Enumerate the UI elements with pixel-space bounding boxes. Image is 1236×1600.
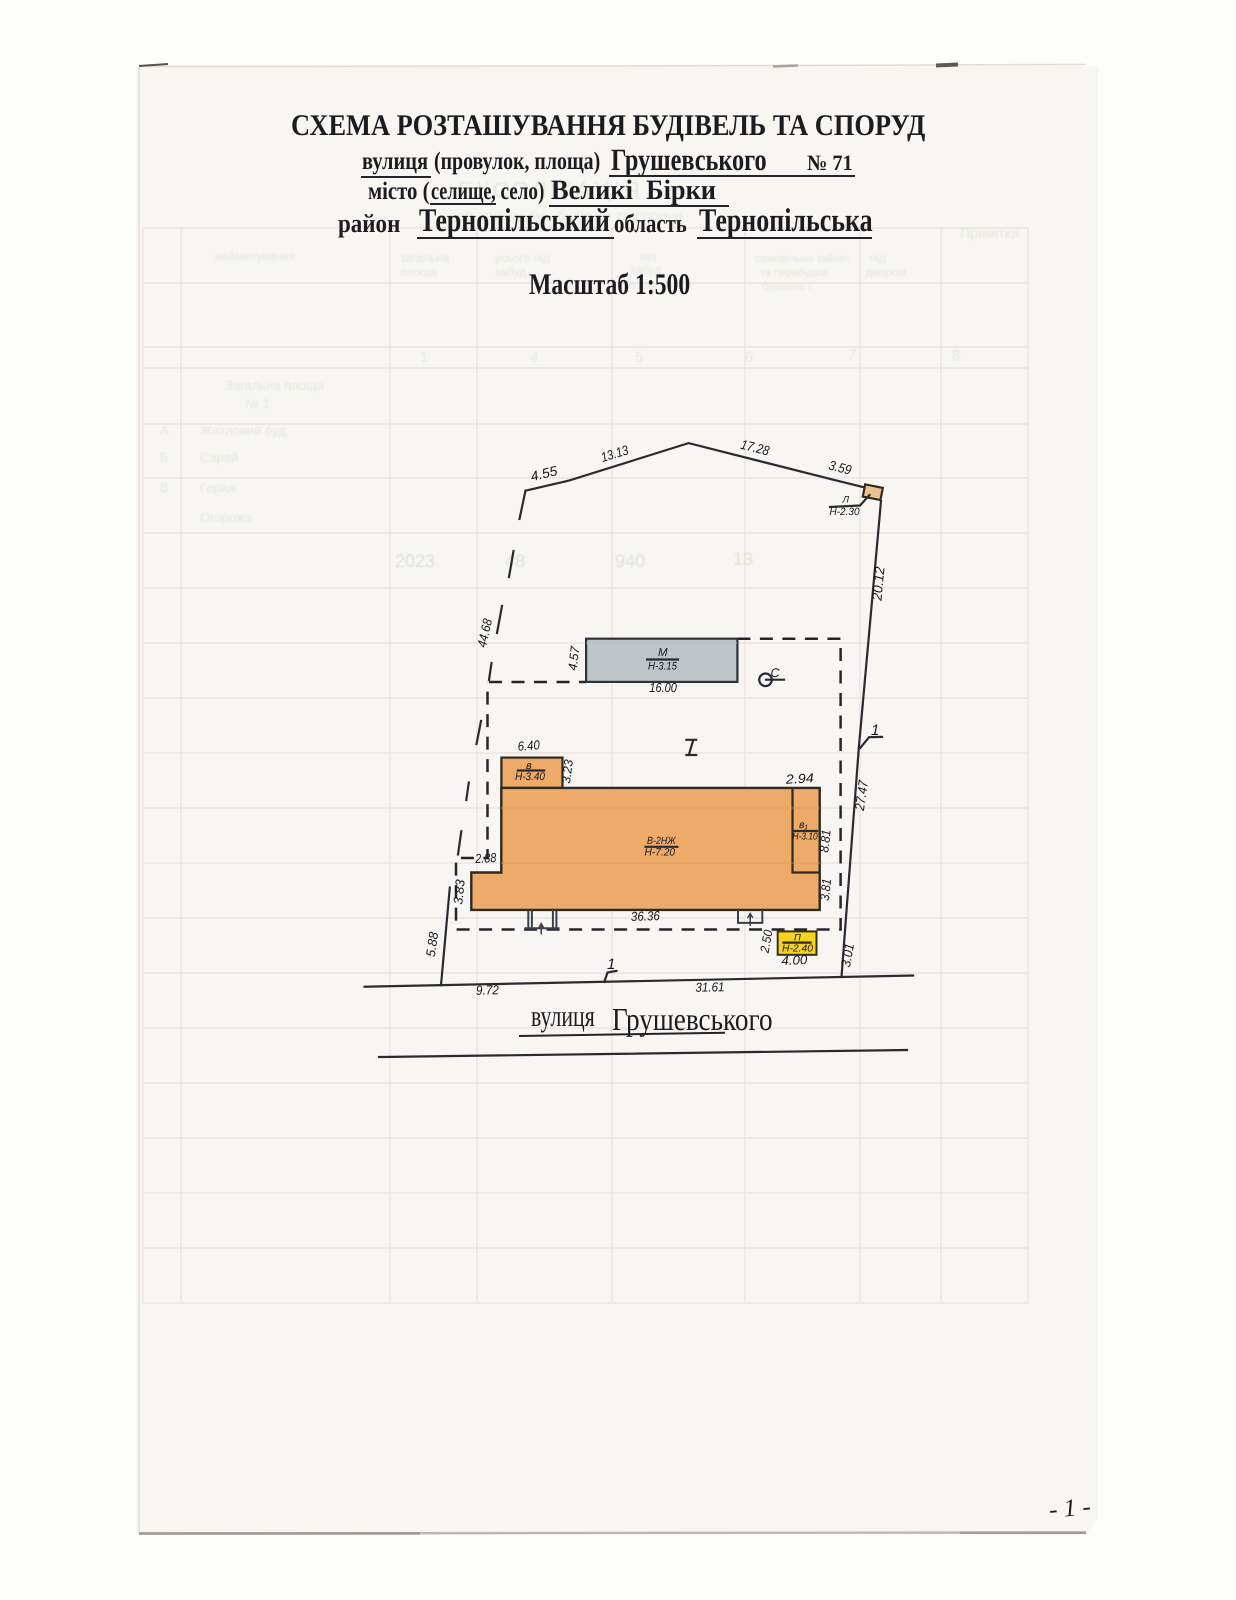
svg-text:В: В: [160, 480, 169, 495]
svg-text:7: 7: [848, 347, 856, 364]
svg-text:48: 48: [505, 551, 525, 571]
svg-text:2023: 2023: [395, 551, 435, 571]
svg-text:будівель і: будівель і: [762, 281, 811, 293]
svg-text:самовільно зайнят.: самовільно зайнят.: [755, 253, 852, 265]
svg-text:4: 4: [530, 349, 538, 366]
svg-text:2.88: 2.88: [474, 850, 497, 866]
svg-text:Загальна площа: Загальна площа: [225, 378, 325, 393]
svg-text:4.00: 4.00: [781, 952, 808, 968]
svg-text:Н-3.10: Н-3.10: [793, 832, 819, 843]
svg-text:С: С: [771, 666, 781, 680]
svg-text:13: 13: [733, 549, 753, 569]
svg-text:3.83: 3.83: [450, 878, 468, 905]
svg-text:3.59: 3.59: [827, 458, 853, 478]
svg-text:5: 5: [635, 349, 643, 366]
svg-text:940: 940: [615, 551, 645, 571]
svg-text:6.40: 6.40: [517, 737, 541, 754]
svg-text:двором: двором: [865, 265, 907, 279]
svg-text:1: 1: [607, 956, 615, 973]
svg-text:8.81: 8.81: [816, 829, 833, 853]
svg-text:31.61: 31.61: [695, 979, 724, 995]
svg-text:В-2НЖ: В-2НЖ: [647, 835, 677, 847]
svg-text:Примітка: Примітка: [960, 225, 1019, 241]
svg-text:2.50: 2.50: [758, 929, 776, 955]
svg-text:36.36: 36.36: [631, 908, 661, 924]
svg-text:27.47: 27.47: [852, 779, 871, 812]
svg-text:5.88: 5.88: [423, 930, 441, 958]
svg-text:6: 6: [745, 349, 753, 366]
svg-text:Н-2.30: Н-2.30: [830, 506, 860, 518]
svg-text:9.72: 9.72: [476, 982, 500, 997]
svg-text:від: від: [640, 249, 656, 263]
svg-text:№ 1: № 1: [245, 396, 270, 411]
svg-text:Б: Б: [160, 450, 169, 465]
svg-text:3.81: 3.81: [817, 878, 834, 901]
svg-text:найменування: найменування: [215, 249, 295, 263]
svg-text:загальна: загальна: [400, 251, 450, 265]
svg-text:Н-3.15: Н-3.15: [648, 661, 678, 673]
svg-text:площа: площа: [400, 265, 437, 279]
svg-text:13.13: 13.13: [599, 442, 631, 465]
svg-text:Л: Л: [842, 495, 850, 506]
svg-text:8: 8: [952, 347, 960, 364]
svg-text:в₁: в₁: [799, 819, 808, 831]
svg-text:Огорожа: Огорожа: [200, 510, 253, 525]
svg-text:1: 1: [871, 722, 879, 739]
svg-text:під: під: [870, 251, 886, 265]
svg-text:усього під: усього під: [495, 251, 550, 265]
svg-text:Н-3.40: Н-3.40: [515, 771, 546, 783]
svg-text:та перебудов: та перебудов: [760, 267, 828, 279]
svg-text:20.12: 20.12: [868, 566, 887, 602]
svg-text:А: А: [160, 423, 169, 438]
svg-text:Н-7.20: Н-7.20: [645, 847, 676, 859]
svg-text:3.23: 3.23: [559, 759, 576, 785]
svg-text:17.28: 17.28: [739, 437, 771, 459]
svg-text:2.94: 2.94: [784, 770, 814, 787]
svg-text:М: М: [658, 647, 668, 659]
svg-text:3.01: 3.01: [838, 942, 857, 968]
svg-text:4.55: 4.55: [529, 463, 559, 484]
svg-text:Житловий буд.: Житловий буд.: [200, 423, 289, 438]
svg-text:16.00: 16.00: [649, 680, 677, 695]
svg-text:1: 1: [420, 349, 428, 366]
svg-text:4.57: 4.57: [566, 645, 583, 672]
svg-text:забуд.: забуд.: [495, 265, 530, 279]
svg-text:Гараж: Гараж: [200, 480, 237, 495]
svg-text:Сарай: Сарай: [200, 450, 239, 465]
